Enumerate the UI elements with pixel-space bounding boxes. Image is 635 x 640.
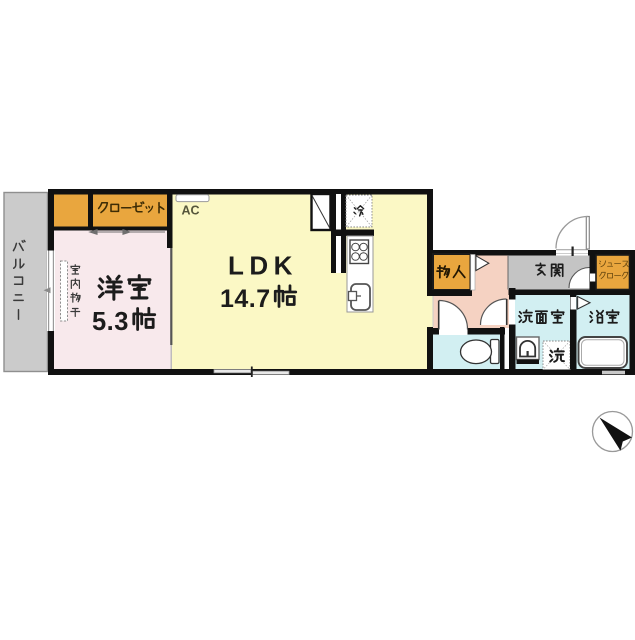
svg-text:5.3: 5.3 bbox=[92, 308, 129, 336]
svg-text:14.7: 14.7 bbox=[220, 285, 271, 313]
svg-text:AC: AC bbox=[182, 204, 200, 218]
svg-text:LDK: LDK bbox=[228, 251, 298, 281]
